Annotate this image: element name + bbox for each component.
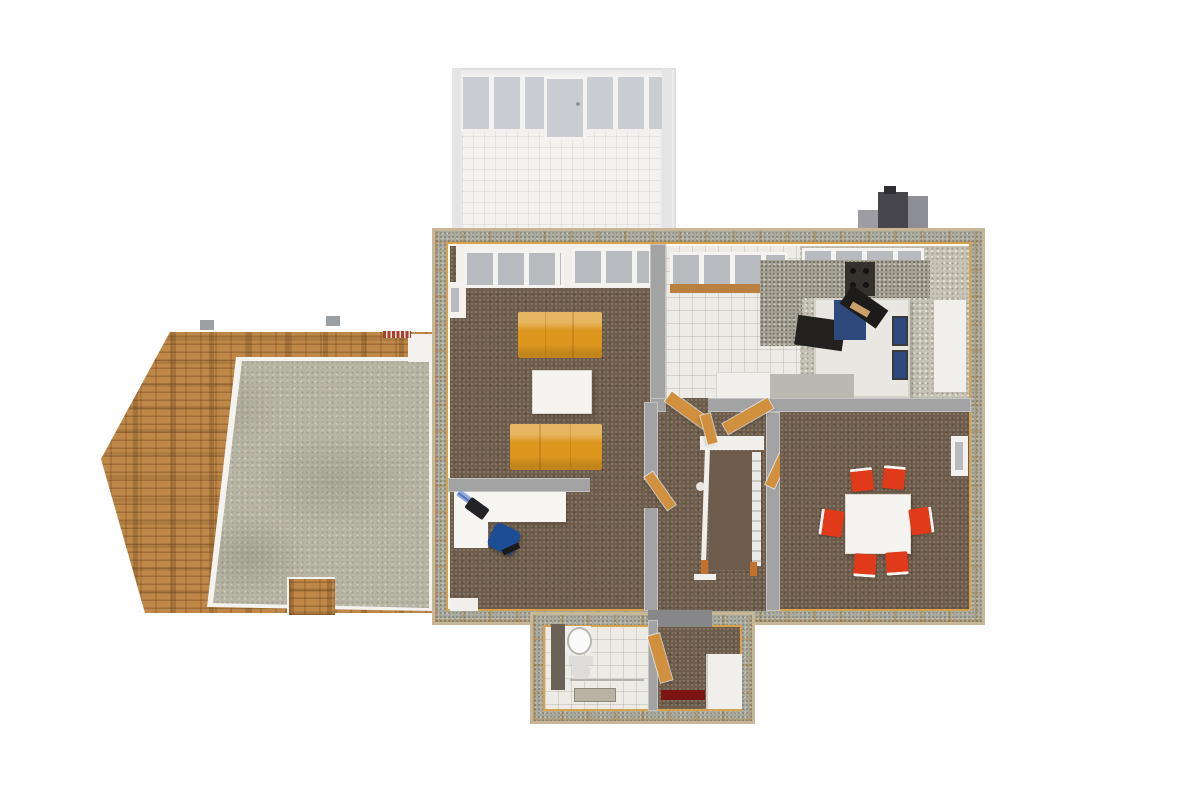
island-appliance-blue[interactable] (892, 350, 908, 380)
wall-living-kitchen (650, 244, 666, 402)
sunroom-right-rail (662, 68, 672, 232)
stair-rail-base (694, 574, 716, 580)
bathroom-vanity[interactable] (551, 624, 565, 690)
bay-window[interactable] (448, 282, 466, 318)
sunroom-left-rail (452, 68, 461, 232)
front-door-mat (661, 690, 705, 700)
sunroom-door[interactable] (544, 76, 586, 140)
dining-chair[interactable] (882, 465, 906, 490)
sunroom (452, 68, 672, 232)
garage-door-threshold[interactable] (450, 598, 478, 611)
entry-closet[interactable] (706, 654, 742, 709)
bay-window-glass (451, 288, 459, 312)
sofa-bottom[interactable] (510, 424, 602, 470)
stair-newel-ball (696, 482, 705, 491)
staircase[interactable] (710, 452, 752, 570)
garage (95, 315, 440, 617)
towel-bar (570, 679, 644, 681)
garage-dentil-lintel (383, 331, 411, 338)
dining-chair[interactable] (818, 509, 844, 538)
island-appliance-blue[interactable] (892, 316, 908, 346)
living-windows-left[interactable] (464, 250, 564, 288)
burner (850, 268, 856, 274)
dining-table[interactable] (845, 494, 911, 554)
wall-hall-dining (766, 412, 780, 611)
coffee-table[interactable] (532, 370, 592, 414)
burner (863, 282, 869, 288)
toilet-bowl[interactable] (572, 663, 590, 680)
dining-chair[interactable] (853, 553, 877, 577)
bathroom-sink[interactable] (567, 627, 592, 655)
garage-side-door[interactable] (408, 334, 432, 362)
chimney-flue-cap (884, 186, 896, 194)
dining-window-glass (955, 442, 963, 470)
living-windows-right[interactable] (572, 248, 652, 286)
garage-brick-pier (287, 577, 335, 615)
burner (863, 268, 869, 274)
dining-chair[interactable] (885, 551, 909, 575)
garage-roof-vent (200, 320, 214, 330)
stair-stringer (752, 452, 761, 566)
kitchen-counter-gray[interactable] (770, 374, 854, 400)
dining-chair[interactable] (908, 507, 934, 536)
sofa-top[interactable] (518, 312, 602, 358)
garage-roof-vent (326, 316, 340, 326)
sunroom-floor (462, 126, 660, 228)
living-office-gap (590, 478, 644, 492)
office-desk-return[interactable] (454, 522, 488, 548)
sunroom-door-handle (576, 102, 580, 106)
floorplan-3d-view (0, 0, 1200, 800)
kitchen-wall-counter[interactable] (934, 300, 966, 392)
stair-newel (750, 562, 757, 576)
dining-window[interactable] (951, 436, 968, 476)
dining-chair[interactable] (850, 467, 874, 492)
bath-rug (574, 688, 616, 702)
